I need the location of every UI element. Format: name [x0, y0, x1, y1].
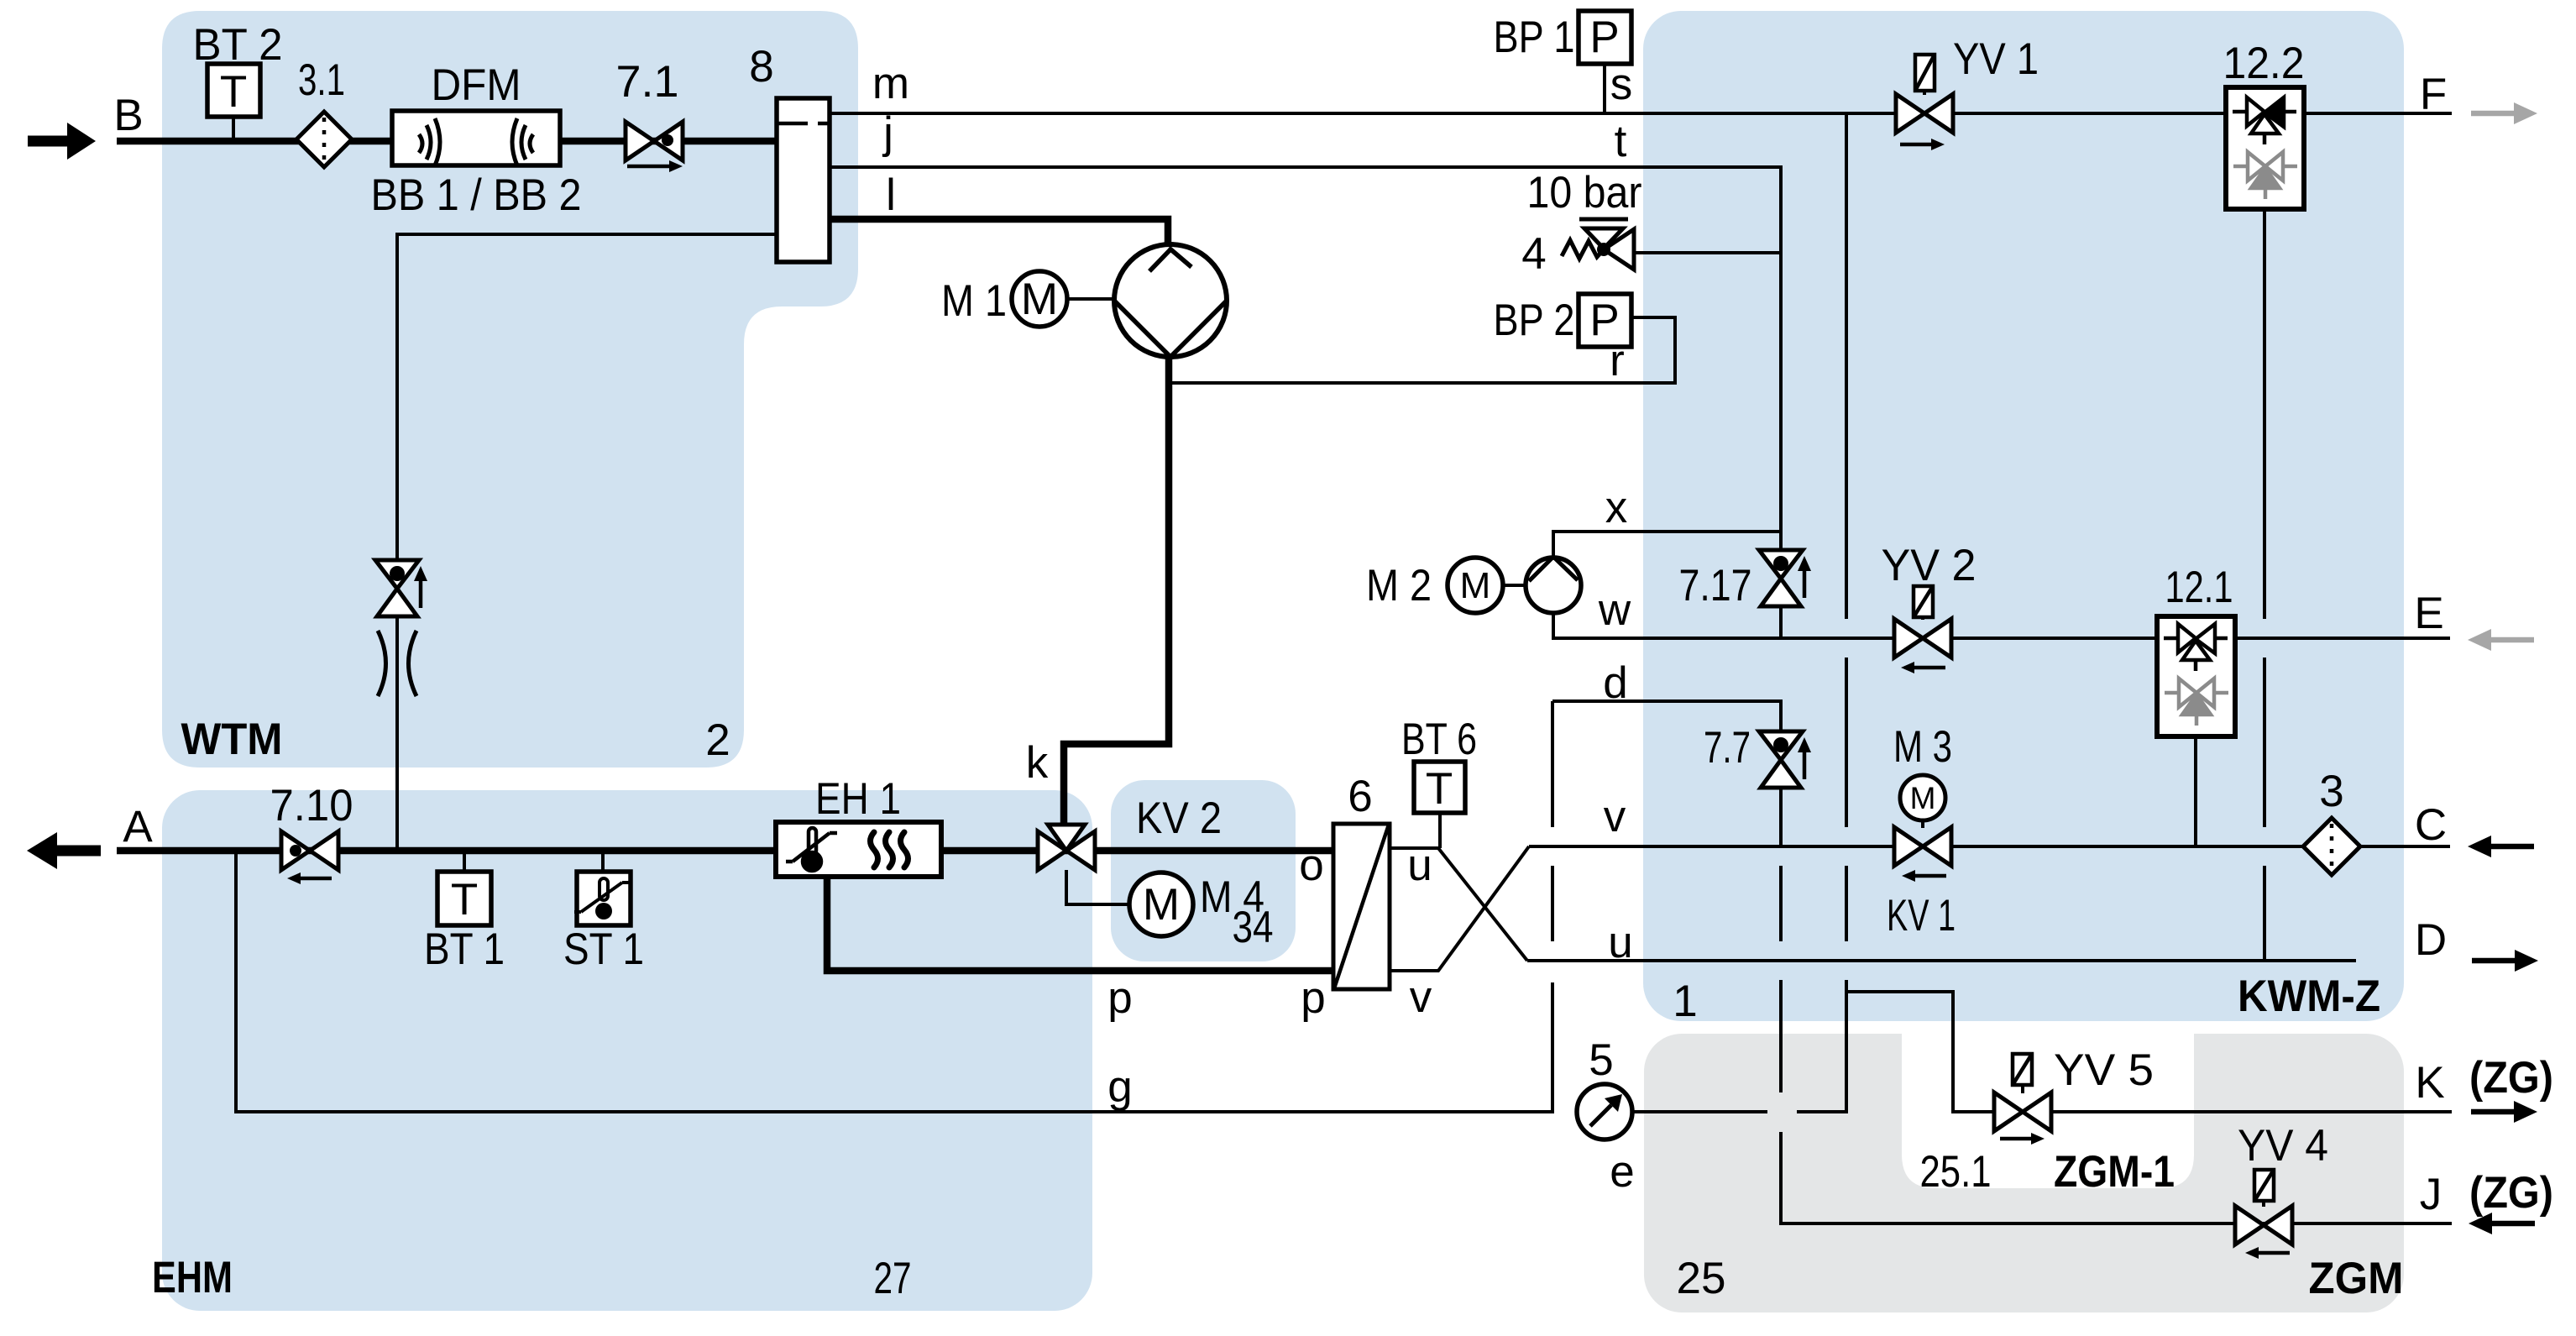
svg-text:EHM: EHM	[152, 1253, 233, 1302]
svg-text:25: 25	[1677, 1254, 1726, 1303]
svg-text:6: 6	[1348, 772, 1372, 821]
svg-text:25.1: 25.1	[1920, 1147, 1992, 1197]
svg-text:DFM: DFM	[432, 60, 521, 110]
svg-text:BT 6: BT 6	[1401, 715, 1477, 764]
svg-text:8: 8	[749, 42, 773, 92]
svg-text:7.1: 7.1	[616, 57, 679, 107]
svg-text:YV 1: YV 1	[1953, 34, 2039, 84]
svg-text:5: 5	[1589, 1035, 1613, 1085]
svg-text:T: T	[451, 875, 478, 925]
svg-text:r: r	[1610, 336, 1625, 385]
svg-text:12.1: 12.1	[2165, 563, 2233, 612]
svg-text:ZGM: ZGM	[2309, 1254, 2404, 1303]
svg-text:p: p	[1107, 973, 1132, 1023]
svg-text:YV 4: YV 4	[2238, 1121, 2328, 1171]
svg-text:3.1: 3.1	[298, 55, 345, 105]
svg-text:(ZG): (ZG)	[2469, 1168, 2553, 1218]
svg-text:F: F	[2420, 70, 2447, 119]
svg-text:EH 1: EH 1	[815, 774, 901, 824]
svg-text:C: C	[2415, 800, 2447, 850]
svg-text:M 2: M 2	[1366, 561, 1432, 610]
svg-text:t: t	[1615, 117, 1627, 166]
svg-text:KV 2: KV 2	[1136, 794, 1222, 843]
svg-text:w: w	[1598, 585, 1631, 635]
svg-text:s: s	[1610, 60, 1633, 109]
svg-text:M 3: M 3	[1893, 722, 1952, 772]
svg-text:J: J	[2420, 1170, 2442, 1219]
svg-text:B: B	[113, 91, 143, 140]
svg-text:BP 1: BP 1	[1494, 13, 1575, 62]
svg-text:M: M	[1143, 880, 1180, 930]
svg-text:p: p	[1301, 973, 1325, 1023]
svg-text:D: D	[2415, 915, 2447, 965]
svg-text:BB 1 / BB 2: BB 1 / BB 2	[371, 170, 582, 220]
svg-text:o: o	[1299, 841, 1323, 890]
svg-text:34: 34	[1233, 903, 1274, 952]
svg-text:e: e	[1610, 1147, 1634, 1197]
svg-text:M: M	[1910, 781, 1936, 815]
svg-text:7.10: 7.10	[270, 781, 353, 830]
svg-text:KWM-Z: KWM-Z	[2238, 972, 2380, 1021]
svg-text:ZGM-1: ZGM-1	[2054, 1147, 2175, 1197]
svg-text:k: k	[1026, 738, 1049, 788]
svg-text:YV 2: YV 2	[1882, 541, 1977, 590]
svg-text:KV 1: KV 1	[1887, 891, 1956, 940]
svg-text:T: T	[1426, 764, 1453, 814]
svg-text:P: P	[1589, 13, 1619, 62]
svg-text:v: v	[1410, 972, 1432, 1022]
svg-text:M 1: M 1	[941, 276, 1007, 326]
svg-text:7.7: 7.7	[1704, 723, 1751, 773]
svg-text:x: x	[1605, 483, 1628, 532]
svg-text:BT 2: BT 2	[193, 20, 283, 70]
svg-text:3: 3	[2319, 767, 2343, 816]
svg-text:M: M	[1021, 275, 1058, 324]
svg-text:m: m	[872, 59, 909, 108]
svg-text:WTM: WTM	[181, 715, 283, 764]
svg-text:YV 5: YV 5	[2054, 1045, 2154, 1095]
svg-text:E: E	[2414, 589, 2443, 638]
svg-text:u: u	[1407, 841, 1432, 890]
svg-text:1: 1	[1673, 977, 1697, 1026]
svg-text:K: K	[2415, 1058, 2444, 1108]
svg-text:u: u	[1608, 918, 1632, 967]
svg-text:(ZG): (ZG)	[2469, 1053, 2553, 1103]
svg-text:10 bar: 10 bar	[1527, 168, 1642, 217]
svg-text:g: g	[1107, 1062, 1132, 1112]
svg-text:ST 1: ST 1	[563, 925, 644, 974]
svg-text:7.17: 7.17	[1679, 561, 1752, 610]
svg-text:4: 4	[1521, 229, 1546, 279]
svg-text:j: j	[882, 108, 893, 158]
svg-text:M: M	[1460, 565, 1491, 606]
svg-text:27: 27	[874, 1254, 912, 1303]
svg-text:BT 1: BT 1	[424, 925, 505, 974]
svg-text:A: A	[123, 802, 153, 851]
svg-text:2: 2	[705, 715, 730, 765]
svg-text:12.2: 12.2	[2223, 39, 2305, 88]
svg-text:v: v	[1604, 792, 1626, 841]
svg-text:T: T	[220, 67, 247, 117]
svg-text:BP 2: BP 2	[1494, 296, 1575, 345]
svg-text:l: l	[886, 170, 896, 220]
svg-text:d: d	[1603, 658, 1627, 708]
